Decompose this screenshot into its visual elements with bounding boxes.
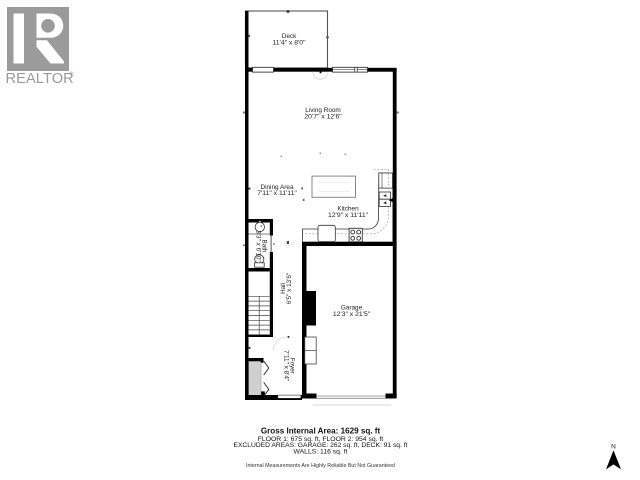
svg-text:7'11" x 8'4": 7'11" x 8'4" bbox=[282, 350, 289, 381]
svg-text:12'3" x 21'5": 12'3" x 21'5" bbox=[333, 311, 371, 318]
svg-text:3'3" x 6'10": 3'3" x 6'10" bbox=[254, 230, 261, 262]
svg-text:WALLS: 116 sq. ft: WALLS: 116 sq. ft bbox=[293, 448, 347, 455]
svg-text:11'4" x 8'0": 11'4" x 8'0" bbox=[273, 40, 307, 47]
svg-text:20'7" x 12'6": 20'7" x 12'6" bbox=[304, 113, 342, 120]
svg-text:REALTOR: REALTOR bbox=[6, 71, 74, 87]
svg-text:®: ® bbox=[70, 71, 74, 78]
svg-text:7'11" x 11'11": 7'11" x 11'11" bbox=[257, 190, 297, 197]
svg-text:Internal Measurements Are High: Internal Measurements Are Highly Reliabl… bbox=[246, 463, 395, 469]
svg-text:N: N bbox=[611, 444, 616, 451]
svg-text:Gross Internal Area: 1629 sq.: Gross Internal Area: 1629 sq. ft bbox=[261, 427, 381, 436]
svg-text:12'9" x 11'11": 12'9" x 11'11" bbox=[328, 212, 369, 219]
svg-text:6'5" x 13'6": 6'5" x 13'6" bbox=[286, 273, 293, 305]
